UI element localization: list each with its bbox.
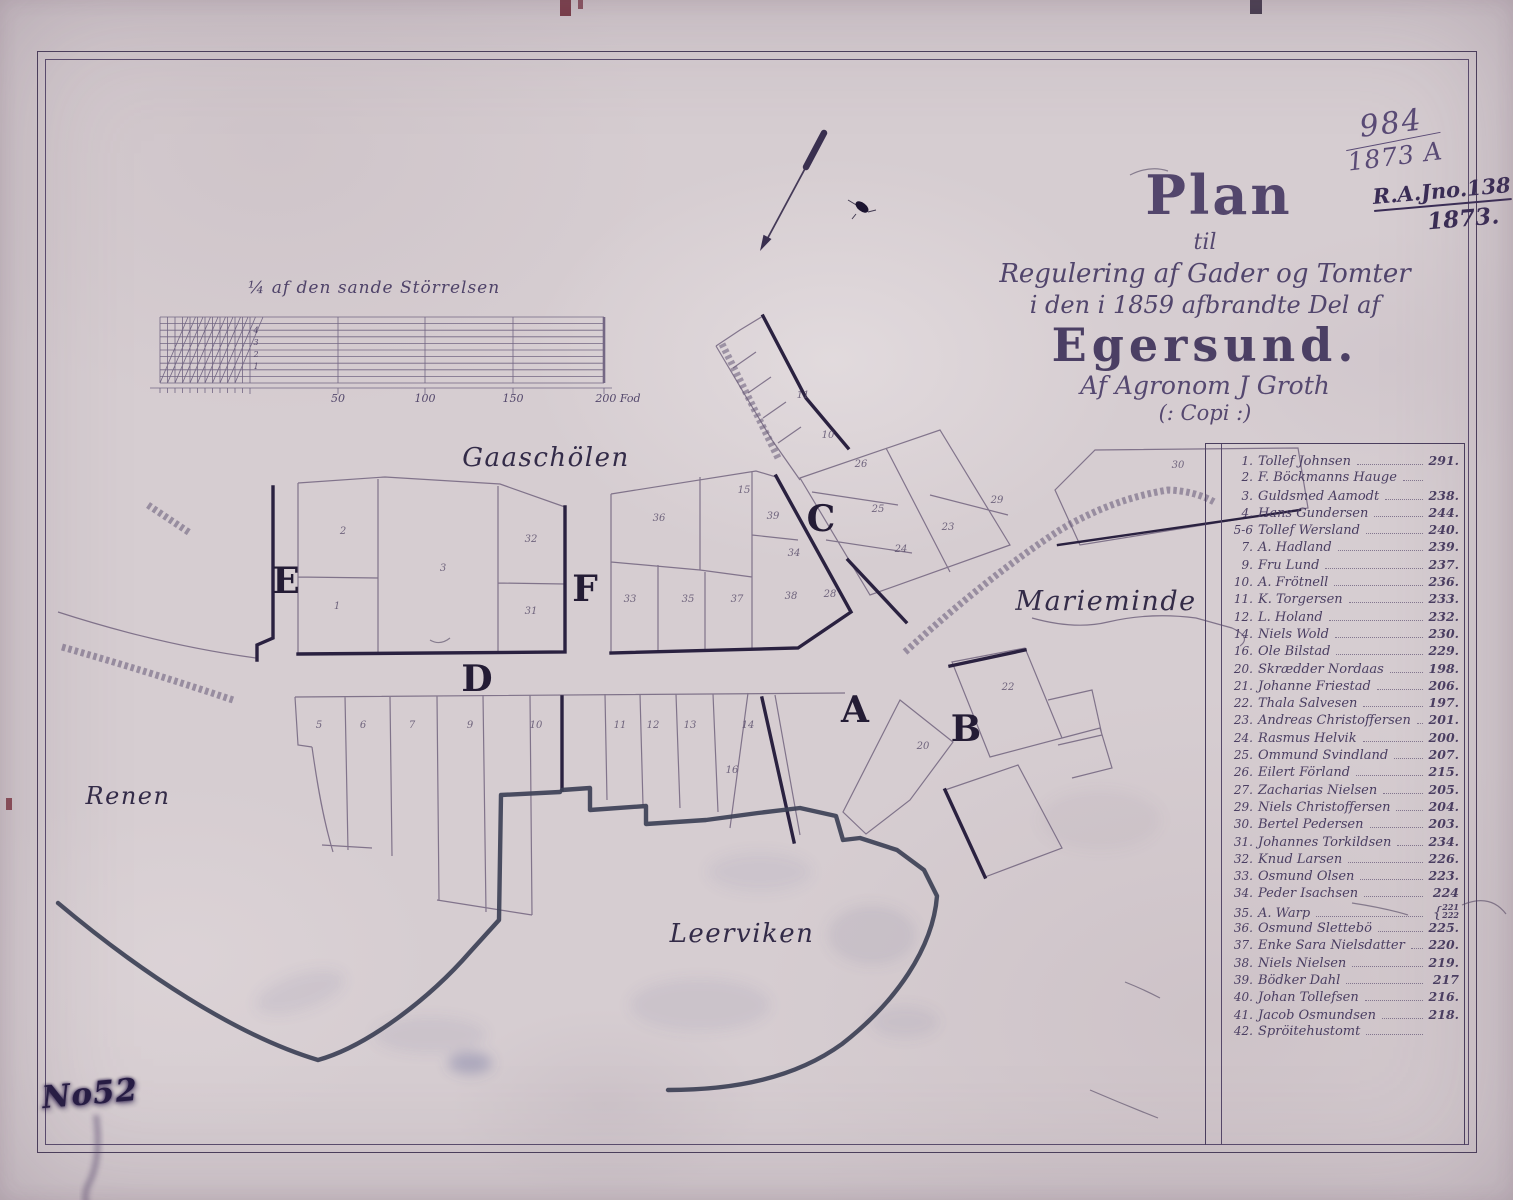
ledger-row: 21.Johanne Friestad206. — [1227, 678, 1459, 695]
ledger-row-name: Knud Larsen — [1258, 852, 1342, 867]
ledger-row-leader — [1329, 620, 1423, 621]
ledger-row-number: 14. — [1227, 627, 1258, 641]
ledger-row-value: 198. — [1427, 661, 1459, 676]
ledger-row-leader — [1378, 931, 1423, 932]
ledger-row-leader — [1325, 568, 1423, 569]
ledger-row-leader — [1396, 810, 1423, 811]
ledger-row: 9.Fru Lund237. — [1227, 557, 1459, 574]
title-til: til — [988, 230, 1422, 255]
ledger-row: 35.A. Warp{221222 — [1227, 903, 1459, 920]
ledger-row: 20.Skrædder Nordaas198. — [1227, 661, 1459, 678]
ledger-row: 4.Hans Gundersen244. — [1227, 505, 1459, 522]
ledger-row-number: 33. — [1227, 869, 1258, 883]
ledger-row-number: 30. — [1227, 817, 1258, 831]
ledger-row-leader — [1357, 464, 1423, 465]
ledger-row-value: 240. — [1427, 522, 1459, 537]
ledger-row: 30.Bertel Pedersen203. — [1227, 816, 1459, 833]
ledger-row-name: Guldsmed Aamodt — [1258, 489, 1379, 504]
ledger-row-value: 220. — [1427, 937, 1459, 952]
ledger-row: 24.Rasmus Helvik200. — [1227, 730, 1459, 747]
ledger-row-number: 21. — [1227, 679, 1258, 693]
ledger-row-number: 32. — [1227, 852, 1258, 866]
title-author: Af Agronom J Groth — [988, 371, 1422, 400]
ledger-row-name: Osmund Olsen — [1258, 869, 1354, 884]
ledger-row-leader — [1417, 723, 1423, 724]
ledger-row-leader — [1334, 585, 1423, 586]
ledger-row: 22.Thala Salvesen197. — [1227, 695, 1459, 712]
ledger-row-leader — [1374, 516, 1423, 517]
ledger-row: 23.Andreas Christoffersen201. — [1227, 712, 1459, 729]
ledger-row-name: K. Torgersen — [1258, 592, 1343, 607]
ledger-row-name: Johannes Torkildsen — [1258, 835, 1391, 850]
ledger-row-value: {221222 — [1427, 903, 1459, 921]
ledger-row-name: Skrædder Nordaas — [1258, 662, 1384, 677]
ledger-row: 1.Tollef Johnsen291. — [1227, 453, 1459, 470]
ledger-row-number: 12. — [1227, 610, 1258, 624]
ledger-row-name: A. Hadland — [1258, 540, 1332, 555]
ledger-row: 40.Johan Tollefsen216. — [1227, 989, 1459, 1006]
ledger-row-name: Johan Tollefsen — [1258, 990, 1359, 1005]
ledger-row-leader — [1338, 550, 1423, 551]
ledger-row-number: 34. — [1227, 886, 1258, 900]
ledger-row-leader — [1352, 966, 1423, 967]
ledger-row-name: A. Frötnell — [1258, 575, 1328, 590]
ledger-row-value: 244. — [1427, 505, 1459, 520]
ledger-row: 36.Osmund Slettebö225. — [1227, 920, 1459, 937]
ledger-row: 26.Eilert Förland215. — [1227, 764, 1459, 781]
ledger-row: 33.Osmund Olsen223. — [1227, 868, 1459, 885]
ledger-row: 38.Niels Nielsen219. — [1227, 955, 1459, 972]
ledger-row-name: Tollef Wersland — [1258, 523, 1360, 538]
ledger-row-name: A. Warp — [1258, 906, 1310, 921]
ledger-row-name: Niels Christoffersen — [1258, 800, 1390, 815]
ledger-row-number: 2. — [1227, 470, 1258, 484]
title-copi: (: Copi :) — [988, 401, 1422, 425]
title-plan: Plan — [1016, 168, 1422, 222]
ledger-row: 41.Jacob Osmundsen218. — [1227, 1007, 1459, 1024]
ledger-row-leader — [1336, 654, 1423, 655]
ledger-row-number: 35. — [1227, 906, 1258, 920]
ledger-row-name: Hans Gundersen — [1258, 506, 1368, 521]
ledger-row-number: 40. — [1227, 990, 1258, 1004]
ledger-row-number: 31. — [1227, 835, 1258, 849]
ledger-row: 37.Enke Sara Nielsdatter220. — [1227, 937, 1459, 954]
ledger-row-value: 219. — [1427, 955, 1459, 970]
ledger-row-number: 16. — [1227, 644, 1258, 658]
title-block: Plan til Regulering af Gader og Tomter i… — [988, 168, 1422, 425]
ledger-row-name: Niels Nielsen — [1258, 956, 1346, 971]
ledger-row-leader — [1360, 879, 1423, 880]
ledger-row-leader — [1356, 775, 1423, 776]
ledger-row-value: 207. — [1427, 747, 1459, 762]
ledger-row-leader — [1335, 637, 1423, 638]
ledger-row-name: Thala Salvesen — [1258, 696, 1357, 711]
ledger-row: 10.A. Frötnell236. — [1227, 574, 1459, 591]
ledger-row-value: 205. — [1427, 782, 1459, 797]
ledger-row-number: 7. — [1227, 540, 1258, 554]
ledger-row-leader — [1383, 793, 1423, 794]
ledger-row-number: 10. — [1227, 575, 1258, 589]
ledger-row-value: 216. — [1427, 989, 1459, 1004]
ledger-row-leader — [1370, 827, 1424, 828]
ledger-row-number: 24. — [1227, 731, 1258, 745]
ledger-row-name: L. Holand — [1258, 610, 1323, 625]
owner-ledger-body: 1.Tollef Johnsen291.2.F. Böckmanns Hauge… — [1206, 444, 1464, 1041]
ledger-row-value: 239. — [1427, 539, 1459, 554]
ledger-row-leader — [1411, 948, 1423, 949]
title-egersund: Egersund. — [988, 321, 1422, 369]
ledger-row-value: 215. — [1427, 764, 1459, 779]
ledger-row-number: 27. — [1227, 783, 1258, 797]
ledger-row-value: 201. — [1427, 712, 1459, 727]
ledger-row-name: Enke Sara Nielsdatter — [1258, 938, 1405, 953]
ledger-row-value: 218. — [1427, 1007, 1459, 1022]
ledger-row-leader — [1363, 741, 1423, 742]
ledger-row: 5-6Tollef Wersland240. — [1227, 522, 1459, 539]
ledger-row-leader — [1366, 1034, 1423, 1035]
ledger-row: 7.A. Hadland239. — [1227, 539, 1459, 556]
ledger-row: 3.Guldsmed Aamodt238. — [1227, 488, 1459, 505]
ledger-row-name: Rasmus Helvik — [1258, 731, 1357, 746]
ledger-row-number: 3. — [1227, 489, 1258, 503]
ledger-row-number: 1. — [1227, 454, 1258, 468]
ledger-row-name: Osmund Slettebö — [1258, 921, 1372, 936]
ledger-row-number: 25. — [1227, 748, 1258, 762]
title-line3: Regulering af Gader og Tomter — [988, 259, 1422, 289]
ledger-row-value: 230. — [1427, 626, 1459, 641]
ledger-row-leader — [1365, 1000, 1423, 1001]
ledger-row: 39.Bödker Dahl217 — [1227, 972, 1459, 989]
ledger-row-value: 223. — [1427, 868, 1459, 883]
ledger-row-name: Niels Wold — [1258, 627, 1329, 642]
ledger-row-leader — [1366, 533, 1423, 534]
ledger-row-leader — [1403, 480, 1423, 481]
ledger-row-value: 197. — [1427, 695, 1459, 710]
ledger-row-value: 234. — [1427, 834, 1459, 849]
ledger-row-value: 233. — [1427, 591, 1459, 606]
title-line4: i den i 1859 afbrandte Del af — [988, 291, 1422, 319]
ledger-row: 42.Spröitehustomt — [1227, 1024, 1459, 1041]
ledger-row: 32.Knud Larsen226. — [1227, 851, 1459, 868]
ledger-row-number: 42. — [1227, 1024, 1258, 1038]
ledger-row-leader — [1382, 1018, 1423, 1019]
ledger-row: 27.Zacharias Nielsen205. — [1227, 782, 1459, 799]
ledger-row-value: 232. — [1427, 609, 1459, 624]
ledger-row-leader — [1364, 896, 1423, 897]
ledger-row: 34.Peder Isachsen224 — [1227, 885, 1459, 902]
ledger-row-number: 22. — [1227, 696, 1258, 710]
ledger-row-name: Ommund Svindland — [1258, 748, 1388, 763]
ledger-row-leader — [1316, 916, 1423, 917]
ledger-row-value: 204. — [1427, 799, 1459, 814]
ledger-row-name: Zacharias Nielsen — [1258, 783, 1377, 798]
ledger-row-number: 20. — [1227, 662, 1258, 676]
ledger-row: 31.Johannes Torkildsen234. — [1227, 834, 1459, 851]
ledger-row-number: 29. — [1227, 800, 1258, 814]
ledger-row-value: 203. — [1427, 816, 1459, 831]
ledger-row-number: 23. — [1227, 713, 1258, 727]
ledger-row-name: F. Böckmanns Hauge — [1258, 470, 1397, 485]
ledger-row-value: 226. — [1427, 851, 1459, 866]
ledger-row-name: Jacob Osmundsen — [1258, 1008, 1376, 1023]
ledger-row-name: Bödker Dahl — [1258, 973, 1340, 988]
ledger-row-leader — [1390, 672, 1423, 673]
ledger-row-value: 236. — [1427, 574, 1459, 589]
ledger-row-leader — [1394, 758, 1423, 759]
ledger-row-name: Bertel Pedersen — [1258, 817, 1364, 832]
ledger-row-leader — [1349, 602, 1423, 603]
ledger-row: 29.Niels Christoffersen204. — [1227, 799, 1459, 816]
ledger-row-leader — [1397, 845, 1423, 846]
ledger-row-number: 5-6 — [1227, 523, 1258, 537]
ledger-row-number: 4. — [1227, 506, 1258, 520]
ledger-row-value: 225. — [1427, 920, 1459, 935]
ledger-row: 16.Ole Bilstad229. — [1227, 643, 1459, 660]
ledger-row-name: Spröitehustomt — [1258, 1024, 1360, 1039]
ledger-row-number: 38. — [1227, 956, 1258, 970]
ledger-row-name: Tollef Johnsen — [1258, 454, 1351, 469]
ledger-row-number: 37. — [1227, 938, 1258, 952]
ledger-row-number: 39. — [1227, 973, 1258, 987]
ledger-row-leader — [1348, 862, 1423, 863]
ledger-row-value: 291. — [1427, 453, 1459, 468]
ledger-row-value: 224 — [1427, 885, 1459, 900]
ledger-row-leader — [1377, 689, 1423, 690]
ledger-row: 12.L. Holand232. — [1227, 609, 1459, 626]
ledger-row-value: 229. — [1427, 643, 1459, 658]
ledger-row-value: 237. — [1427, 557, 1459, 572]
map-sheet: ¼ af den sande Störrelsen 50100150200 Fo… — [0, 0, 1513, 1200]
ledger-row: 25.Ommund Svindland207. — [1227, 747, 1459, 764]
ledger-row-value: 206. — [1427, 678, 1459, 693]
ledger-row-name: Fru Lund — [1258, 558, 1319, 573]
ledger-row-name: Eilert Förland — [1258, 765, 1350, 780]
ledger-row-name: Johanne Friestad — [1258, 679, 1371, 694]
ledger-row-number: 26. — [1227, 765, 1258, 779]
ledger-row-leader — [1346, 983, 1423, 984]
ledger-row-number: 36. — [1227, 921, 1258, 935]
ledger-row-value: 238. — [1427, 488, 1459, 503]
ledger-row-value: 217 — [1427, 972, 1459, 987]
ledger-row-number: 11. — [1227, 592, 1258, 606]
ledger-row: 2.F. Böckmanns Hauge — [1227, 470, 1459, 487]
ledger-row-leader — [1363, 706, 1423, 707]
ledger-row-number: 9. — [1227, 558, 1258, 572]
ledger-row: 11.K. Torgersen233. — [1227, 591, 1459, 608]
ledger-row-name: Peder Isachsen — [1258, 886, 1358, 901]
ledger-row-number: 41. — [1227, 1008, 1258, 1022]
ledger-row-leader — [1385, 499, 1423, 500]
ledger-row-value: 200. — [1427, 730, 1459, 745]
ledger-row: 14.Niels Wold230. — [1227, 626, 1459, 643]
owner-ledger: 1.Tollef Johnsen291.2.F. Böckmanns Hauge… — [1205, 443, 1465, 1145]
ledger-row-name: Ole Bilstad — [1258, 644, 1330, 659]
ledger-row-name: Andreas Christoffersen — [1258, 713, 1411, 728]
